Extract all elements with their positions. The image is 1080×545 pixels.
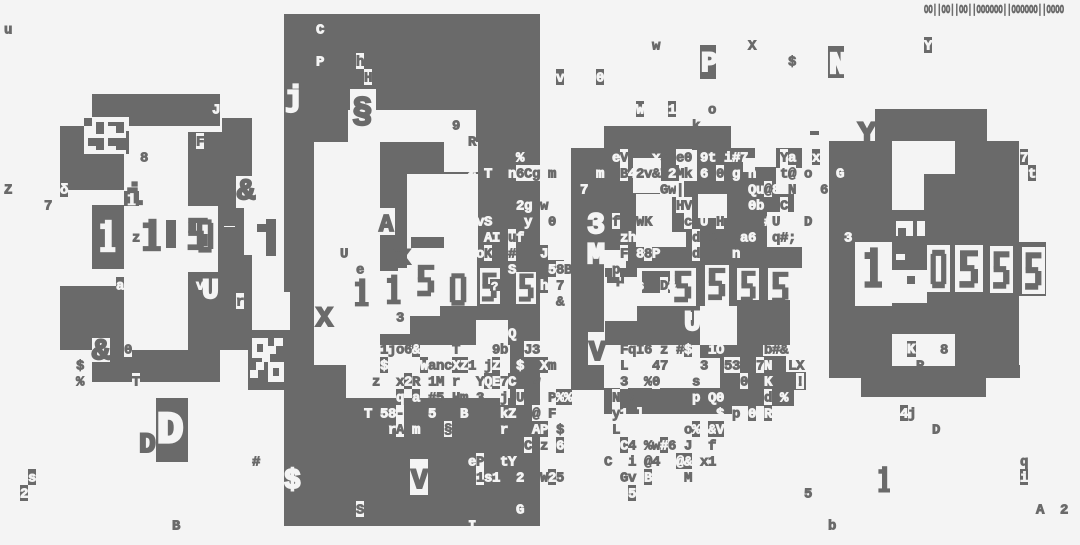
svg-text:C: C xyxy=(708,231,717,247)
svg-text:0: 0 xyxy=(548,215,556,231)
svg-text:F: F xyxy=(548,407,556,423)
svg-text:a: a xyxy=(412,391,421,407)
svg-text:F: F xyxy=(196,135,204,151)
svg-text:$: $ xyxy=(716,407,724,423)
svg-text:1: 1 xyxy=(620,407,628,423)
svg-text:3: 3 xyxy=(732,359,740,375)
svg-text:A: A xyxy=(396,423,405,439)
svg-text:T: T xyxy=(364,407,372,423)
svg-text:p: p xyxy=(692,391,700,407)
svg-text:S: S xyxy=(508,263,516,279)
svg-text:r: r xyxy=(236,295,244,311)
svg-text:z: z xyxy=(372,375,380,391)
svg-text:v: v xyxy=(628,471,637,487)
svg-text:%: % xyxy=(780,391,789,407)
svg-text:0: 0 xyxy=(684,151,692,167)
svg-text:u: u xyxy=(4,23,12,39)
svg-text:g: g xyxy=(532,167,540,183)
svg-text:U: U xyxy=(340,247,348,263)
svg-text:3: 3 xyxy=(620,375,628,391)
svg-text:0: 0 xyxy=(652,375,660,391)
svg-text:5: 5 xyxy=(804,487,812,503)
svg-text:h: h xyxy=(628,231,636,247)
svg-text:Z: Z xyxy=(492,359,500,375)
svg-text:P: P xyxy=(540,423,548,439)
svg-text:h: h xyxy=(540,279,548,295)
svg-text:R: R xyxy=(468,135,477,151)
svg-text:9: 9 xyxy=(660,231,668,247)
svg-text:&: & xyxy=(668,279,677,295)
svg-text:p: p xyxy=(732,407,740,423)
svg-text:Y: Y xyxy=(508,455,517,471)
svg-text:&: & xyxy=(780,343,789,359)
svg-text:&: & xyxy=(92,335,110,369)
svg-text:§: § xyxy=(444,423,452,439)
svg-text:8: 8 xyxy=(772,183,780,199)
svg-text:Y: Y xyxy=(858,118,876,152)
svg-text:g: g xyxy=(732,167,740,183)
svg-text:N: N xyxy=(829,48,848,83)
svg-text:P: P xyxy=(701,49,718,80)
svg-text:s: s xyxy=(636,279,644,295)
svg-text:z: z xyxy=(132,231,140,247)
svg-text:;: ; xyxy=(788,231,796,247)
svg-text:E: E xyxy=(636,199,644,215)
svg-text:@: @ xyxy=(780,215,789,231)
svg-text:1: 1 xyxy=(468,359,476,375)
svg-text:T: T xyxy=(452,343,460,359)
svg-text:t: t xyxy=(708,151,716,167)
svg-text:0: 0 xyxy=(740,375,748,391)
svg-text:V: V xyxy=(589,338,606,369)
svg-text:T: T xyxy=(132,375,140,391)
svg-text:§: § xyxy=(352,95,372,133)
svg-text:v: v xyxy=(556,71,565,87)
svg-text:m: m xyxy=(548,167,556,183)
svg-text:S: S xyxy=(484,215,492,231)
svg-text:?: ? xyxy=(491,280,498,294)
svg-text:5: 5 xyxy=(628,487,636,503)
svg-text:x: x xyxy=(812,151,821,167)
svg-text:5: 5 xyxy=(436,391,444,407)
svg-text:r: r xyxy=(500,423,508,439)
svg-text:P: P xyxy=(916,359,924,375)
svg-text:B: B xyxy=(460,407,469,423)
svg-text:U: U xyxy=(700,215,708,231)
svg-text:3: 3 xyxy=(476,391,484,407)
svg-text:Z: Z xyxy=(4,183,12,199)
svg-text:s: s xyxy=(28,471,36,487)
svg-text:2: 2 xyxy=(1060,503,1068,519)
svg-text:H: H xyxy=(716,215,724,231)
svg-text:F: F xyxy=(620,247,628,263)
svg-text:D: D xyxy=(157,406,183,456)
svg-text:7: 7 xyxy=(628,391,636,407)
svg-text:7: 7 xyxy=(740,151,748,167)
svg-text:3: 3 xyxy=(700,359,708,375)
svg-text:D: D xyxy=(139,430,156,461)
svg-text:b: b xyxy=(756,199,764,215)
svg-text:C: C xyxy=(604,455,613,471)
svg-text:h: h xyxy=(748,167,756,183)
svg-text:@: @ xyxy=(788,167,797,183)
svg-text:K: K xyxy=(644,215,653,231)
svg-text:S: S xyxy=(356,503,364,519)
svg-text:H: H xyxy=(364,71,372,87)
svg-text:6: 6 xyxy=(556,439,564,455)
svg-text:0: 0 xyxy=(716,167,724,183)
svg-text:D: D xyxy=(932,423,940,439)
svg-text:7: 7 xyxy=(556,279,564,295)
svg-text:i: i xyxy=(628,455,636,471)
svg-text:J: J xyxy=(540,247,548,263)
svg-text:d: d xyxy=(692,247,700,263)
svg-text:N: N xyxy=(788,183,796,199)
svg-text:1: 1 xyxy=(708,455,716,471)
svg-text:K: K xyxy=(764,375,773,391)
svg-text:a: a xyxy=(116,279,125,295)
svg-text:P: P xyxy=(476,455,484,471)
svg-text:&: & xyxy=(556,295,565,311)
svg-text:e: e xyxy=(356,263,364,279)
svg-text:w: w xyxy=(652,39,661,55)
svg-text:B: B xyxy=(564,263,573,279)
svg-text:8: 8 xyxy=(140,151,148,167)
svg-text:L: L xyxy=(612,423,620,439)
svg-text:$: $ xyxy=(788,55,796,71)
svg-text:9: 9 xyxy=(452,119,460,135)
svg-text:%: % xyxy=(516,151,525,167)
svg-text:#: # xyxy=(252,455,260,471)
svg-text:P: P xyxy=(652,247,660,263)
svg-text:@: @ xyxy=(532,407,541,423)
svg-text:D: D xyxy=(804,215,812,231)
svg-text:1: 1 xyxy=(668,103,676,119)
svg-text:7: 7 xyxy=(660,359,668,375)
svg-text:x: x xyxy=(394,242,411,273)
svg-text:m: m xyxy=(460,391,468,407)
svg-text:A: A xyxy=(379,212,394,239)
svg-text:|: | xyxy=(676,183,684,199)
svg-text:o: o xyxy=(708,103,716,119)
svg-text:$: $ xyxy=(516,359,524,375)
svg-text:0: 0 xyxy=(124,343,132,359)
svg-text:a: a xyxy=(788,151,797,167)
svg-text:0: 0 xyxy=(748,407,756,423)
svg-text:R: R xyxy=(764,407,773,423)
svg-text:V: V xyxy=(411,466,428,497)
svg-text:y: y xyxy=(524,215,533,231)
svg-text:b: b xyxy=(828,519,836,535)
svg-text:i: i xyxy=(1020,471,1028,487)
svg-text:I: I xyxy=(468,519,476,535)
svg-text:6: 6 xyxy=(748,231,756,247)
svg-text:T: T xyxy=(484,167,492,183)
svg-text:X: X xyxy=(748,39,757,55)
svg-text:7: 7 xyxy=(1020,151,1028,167)
svg-text:$: $ xyxy=(380,359,388,375)
svg-text:z: z xyxy=(660,343,668,359)
svg-text:J: J xyxy=(212,103,220,119)
svg-text:d: d xyxy=(692,231,700,247)
svg-text:2: 2 xyxy=(516,471,524,487)
svg-text:U: U xyxy=(684,308,701,339)
svg-text:$: $ xyxy=(684,343,692,359)
svg-text:g: g xyxy=(524,199,532,215)
svg-text:Q: Q xyxy=(508,327,516,343)
svg-text:k: k xyxy=(692,119,700,135)
svg-text:6: 6 xyxy=(700,167,708,183)
svg-text:X: X xyxy=(796,359,805,375)
svg-text:h: h xyxy=(356,55,364,71)
svg-text:f: f xyxy=(708,439,716,455)
svg-text:2: 2 xyxy=(20,487,28,503)
svg-text:6: 6 xyxy=(668,439,676,455)
svg-text:p: p xyxy=(612,263,620,279)
svg-text:8: 8 xyxy=(940,343,948,359)
svg-text:m: m xyxy=(548,359,556,375)
svg-text:B: B xyxy=(172,519,181,535)
svg-text:7: 7 xyxy=(44,199,52,215)
svg-text:0: 0 xyxy=(596,71,604,87)
svg-text:f: f xyxy=(516,231,524,247)
svg-text:3: 3 xyxy=(396,311,404,327)
svg-text:B: B xyxy=(644,471,653,487)
svg-text:#: # xyxy=(508,247,516,263)
svg-text:j: j xyxy=(500,391,508,407)
svg-text:M: M xyxy=(436,375,444,391)
svg-text:Z: Z xyxy=(508,407,516,423)
svg-text:G: G xyxy=(836,167,844,183)
svg-text:V: V xyxy=(716,423,725,439)
svg-text:δ: δ xyxy=(60,183,68,199)
svg-text:G: G xyxy=(516,503,524,519)
svg-text:m: m xyxy=(596,167,604,183)
svg-text:C: C xyxy=(524,439,533,455)
svg-text:U: U xyxy=(202,276,219,307)
svg-text:I: I xyxy=(492,231,500,247)
svg-text:&: & xyxy=(468,167,477,183)
svg-text:X: X xyxy=(316,304,333,335)
svg-text:U: U xyxy=(516,391,524,407)
svg-text:N: N xyxy=(612,391,620,407)
svg-text:5: 5 xyxy=(556,471,564,487)
svg-text:r: r xyxy=(452,375,460,391)
svg-text:R: R xyxy=(412,375,421,391)
svg-text:j: j xyxy=(908,407,916,423)
svg-text:q: q xyxy=(1020,455,1028,471)
svg-text:N: N xyxy=(764,359,772,375)
svg-text:3: 3 xyxy=(587,209,605,243)
svg-text:t: t xyxy=(1028,167,1036,183)
svg-text:V: V xyxy=(620,151,629,167)
svg-text:$: $ xyxy=(76,359,84,375)
svg-text:G: G xyxy=(468,183,476,199)
svg-text:W: W xyxy=(636,103,645,119)
svg-text:$: $ xyxy=(284,466,301,497)
svg-text:M: M xyxy=(684,471,692,487)
svg-text:f: f xyxy=(612,215,620,231)
svg-text:6: 6 xyxy=(820,183,828,199)
svg-text:3: 3 xyxy=(844,231,852,247)
svg-text:&: & xyxy=(684,455,693,471)
svg-text:k: k xyxy=(684,167,692,183)
svg-text:%: % xyxy=(692,423,701,439)
svg-text:z: z xyxy=(540,439,548,455)
svg-text:M: M xyxy=(587,239,605,273)
svg-text:m: m xyxy=(412,423,420,439)
svg-text:v: v xyxy=(196,279,205,295)
svg-text:Y: Y xyxy=(924,39,933,55)
svg-text:w: w xyxy=(532,375,541,391)
svg-text:7: 7 xyxy=(580,183,588,199)
svg-text:V: V xyxy=(684,199,693,215)
svg-text:%: % xyxy=(76,375,85,391)
svg-text:c: c xyxy=(684,215,692,231)
svg-text:C: C xyxy=(780,199,789,215)
svg-text:6: 6 xyxy=(644,343,652,359)
svg-text:-: - xyxy=(396,407,404,423)
svg-text:5: 5 xyxy=(428,407,436,423)
svg-text:s: s xyxy=(692,375,700,391)
svg-text:C: C xyxy=(508,375,517,391)
svg-text:P: P xyxy=(316,55,324,71)
svg-text:%: % xyxy=(564,391,573,407)
svg-text:A: A xyxy=(1036,503,1045,519)
svg-text:1: 1 xyxy=(492,471,500,487)
svg-text:J: J xyxy=(684,439,692,455)
svg-text:q: q xyxy=(396,391,404,407)
svg-text:$: $ xyxy=(556,423,564,439)
svg-text:d: d xyxy=(764,391,772,407)
svg-text:O: O xyxy=(716,343,724,359)
svg-text:1: 1 xyxy=(708,375,716,391)
svg-text:b: b xyxy=(500,343,508,359)
svg-text:l: l xyxy=(636,407,644,423)
svg-text:!: ! xyxy=(796,375,804,391)
svg-text:0: 0 xyxy=(716,391,724,407)
svg-text:x: x xyxy=(708,183,717,199)
svg-text:&: & xyxy=(412,343,421,359)
svg-text:j: j xyxy=(285,82,303,116)
svg-text:L: L xyxy=(620,359,628,375)
svg-text:n: n xyxy=(732,247,740,263)
svg-text:3: 3 xyxy=(532,343,540,359)
svg-text:K: K xyxy=(907,342,916,358)
svg-text:4: 4 xyxy=(628,439,636,455)
svg-text:K: K xyxy=(484,247,493,263)
svg-text:C: C xyxy=(316,23,325,39)
svg-text:OO||OO||OO||OOOOOO||OOOOOO||OO: OO||OO||OO||OOOOOO||OOOOOO||OOOO xyxy=(924,3,1064,17)
svg-text:o: o xyxy=(804,167,812,183)
svg-text:&: & xyxy=(237,175,255,209)
svg-text:4: 4 xyxy=(652,455,660,471)
svg-text:w: w xyxy=(540,199,549,215)
